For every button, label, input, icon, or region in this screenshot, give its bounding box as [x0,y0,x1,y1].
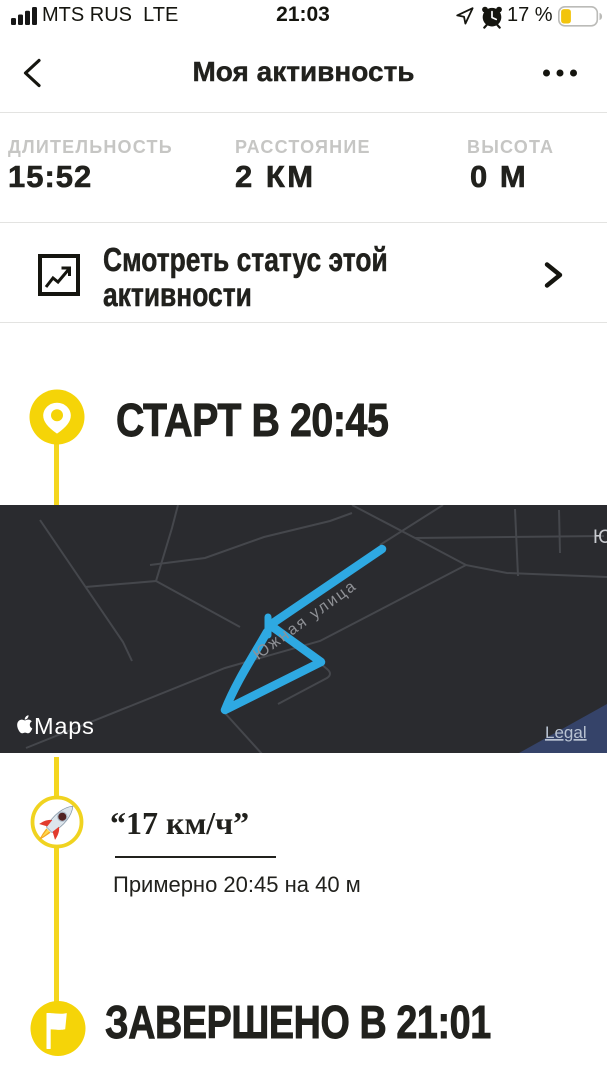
svg-text:Юж: Юж [593,527,607,548]
svg-text:Legal: Legal [545,723,587,742]
svg-text:Maps: Maps [34,713,95,739]
